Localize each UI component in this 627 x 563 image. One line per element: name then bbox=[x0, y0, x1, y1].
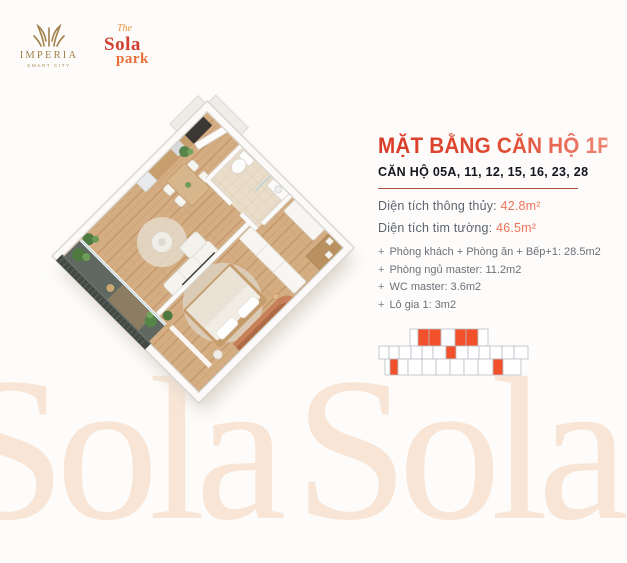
list-item: +Lô gia 1: 3m2 bbox=[378, 297, 622, 315]
room-list: +Phòng khách + Phòng ăn + Bếp+1: 28.5m2 … bbox=[378, 244, 622, 314]
divider bbox=[378, 188, 578, 189]
sola-park-logo: The Sola park bbox=[104, 24, 149, 67]
imperia-tagline: SMART CITY bbox=[18, 63, 80, 68]
highlighted-unit bbox=[466, 329, 478, 346]
area-gross-value: 46.5m² bbox=[496, 221, 536, 235]
header-logos: IMPERIA SMART CITY The Sola park bbox=[18, 22, 149, 68]
page-title: MẶT BẰNG CĂN HỘ 1PN+ bbox=[378, 133, 607, 159]
floor-plan-3d bbox=[36, 80, 370, 426]
area-gross: Diện tích tim tường: 46.5m² bbox=[378, 221, 622, 235]
building-key-plan bbox=[378, 326, 530, 380]
unit-info-panel: MẶT BẰNG CĂN HỘ 1PN+ CĂN HỘ 05A, 11, 12,… bbox=[378, 133, 622, 380]
highlighted-unit bbox=[493, 359, 503, 375]
highlighted-unit bbox=[429, 329, 441, 346]
area-net: Diện tích thông thủy: 42.8m² bbox=[378, 199, 622, 213]
floor-plan-container bbox=[36, 80, 370, 426]
list-item: +Phòng khách + Phòng ăn + Bếp+1: 28.5m2 bbox=[378, 244, 622, 262]
highlighted-unit bbox=[446, 346, 456, 359]
list-item: +WC master: 3.6m2 bbox=[378, 279, 622, 297]
imperia-wordmark: IMPERIA bbox=[18, 50, 80, 61]
highlighted-unit bbox=[418, 329, 429, 346]
unit-numbers: CĂN HỘ 05A, 11, 12, 15, 16, 23, 28 bbox=[378, 165, 622, 179]
imperia-tulip-icon bbox=[32, 22, 66, 48]
list-item: +Phòng ngủ master: 11.2m2 bbox=[378, 262, 622, 280]
highlighted-unit bbox=[455, 329, 466, 346]
imperia-logo: IMPERIA SMART CITY bbox=[18, 22, 80, 68]
area-net-value: 42.8m² bbox=[501, 199, 541, 213]
highlighted-unit bbox=[390, 359, 398, 375]
